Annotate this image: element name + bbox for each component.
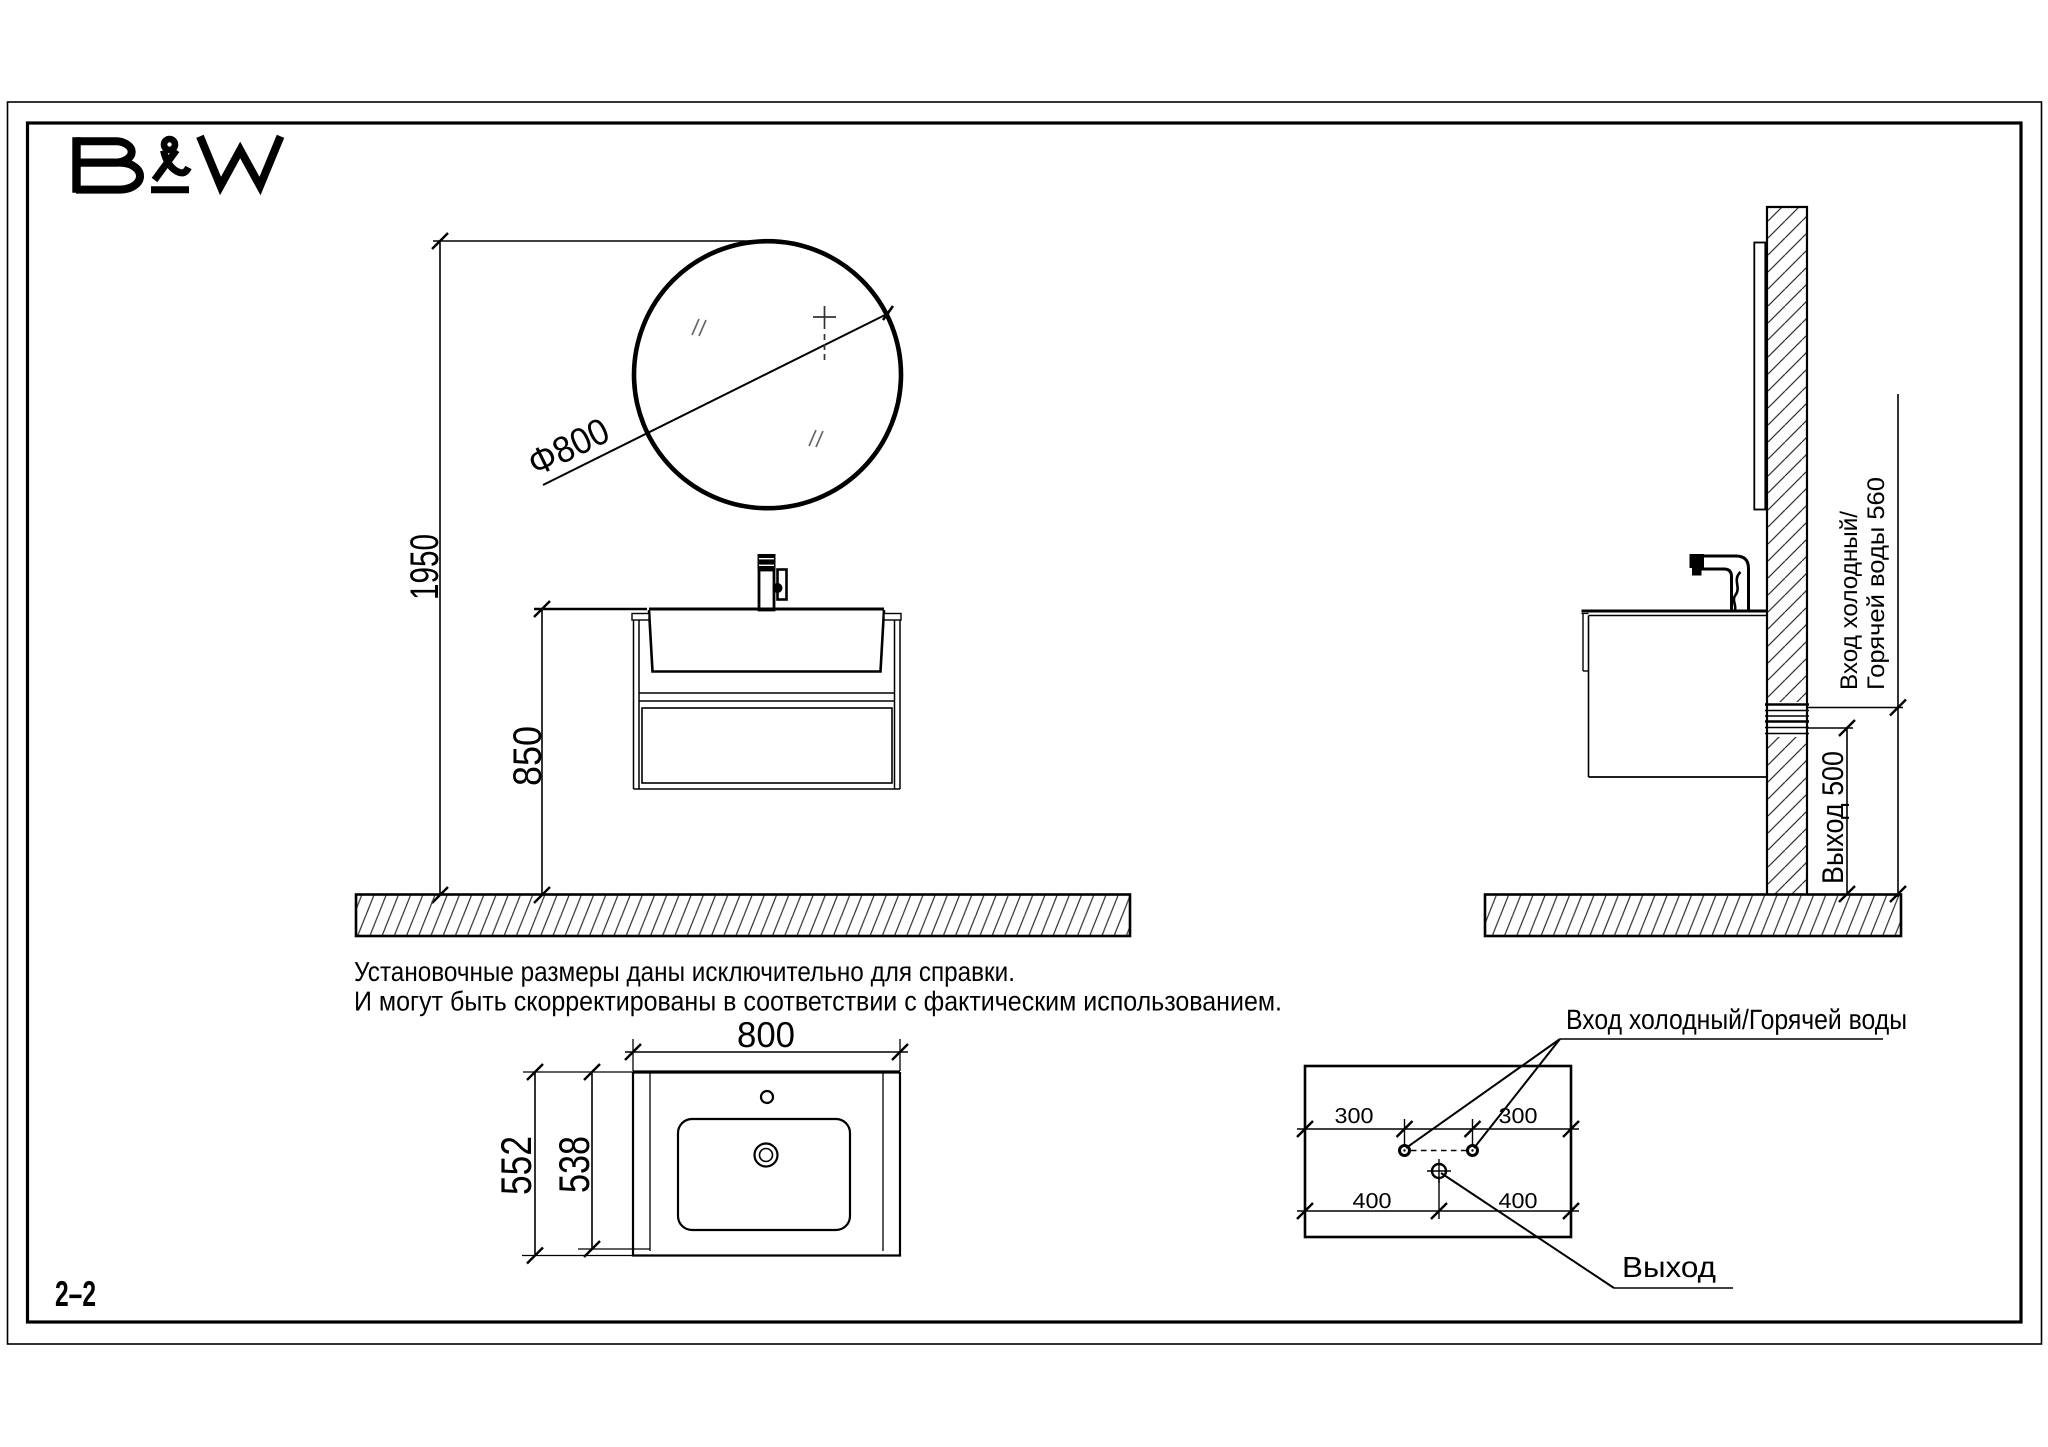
svg-text:Вход холодный/: Вход холодный/ [1836, 511, 1863, 690]
svg-text:Выход 500: Выход 500 [1817, 751, 1850, 884]
svg-text:Горячей воды 560: Горячей воды 560 [1863, 477, 1890, 690]
svg-text:850: 850 [506, 726, 550, 786]
svg-text:400: 400 [1499, 1189, 1538, 1213]
svg-text:300: 300 [1335, 1104, 1374, 1128]
svg-text:300: 300 [1499, 1104, 1538, 1128]
svg-text:Вход холодный/Горячей воды: Вход холодный/Горячей воды [1566, 1004, 1907, 1035]
svg-text:Установочные размеры даны искл: Установочные размеры даны исключительно … [354, 956, 1015, 987]
svg-text:1950: 1950 [403, 534, 447, 600]
svg-text:800: 800 [737, 1014, 795, 1055]
svg-text:2–2: 2–2 [55, 1273, 96, 1314]
svg-text:552: 552 [493, 1136, 541, 1195]
svg-text:538: 538 [551, 1136, 599, 1193]
svg-text:И могут быть скорректированы в: И могут быть скорректированы в соответст… [354, 986, 1282, 1017]
svg-text:400: 400 [1353, 1189, 1392, 1213]
svg-text:Выход: Выход [1622, 1252, 1716, 1284]
